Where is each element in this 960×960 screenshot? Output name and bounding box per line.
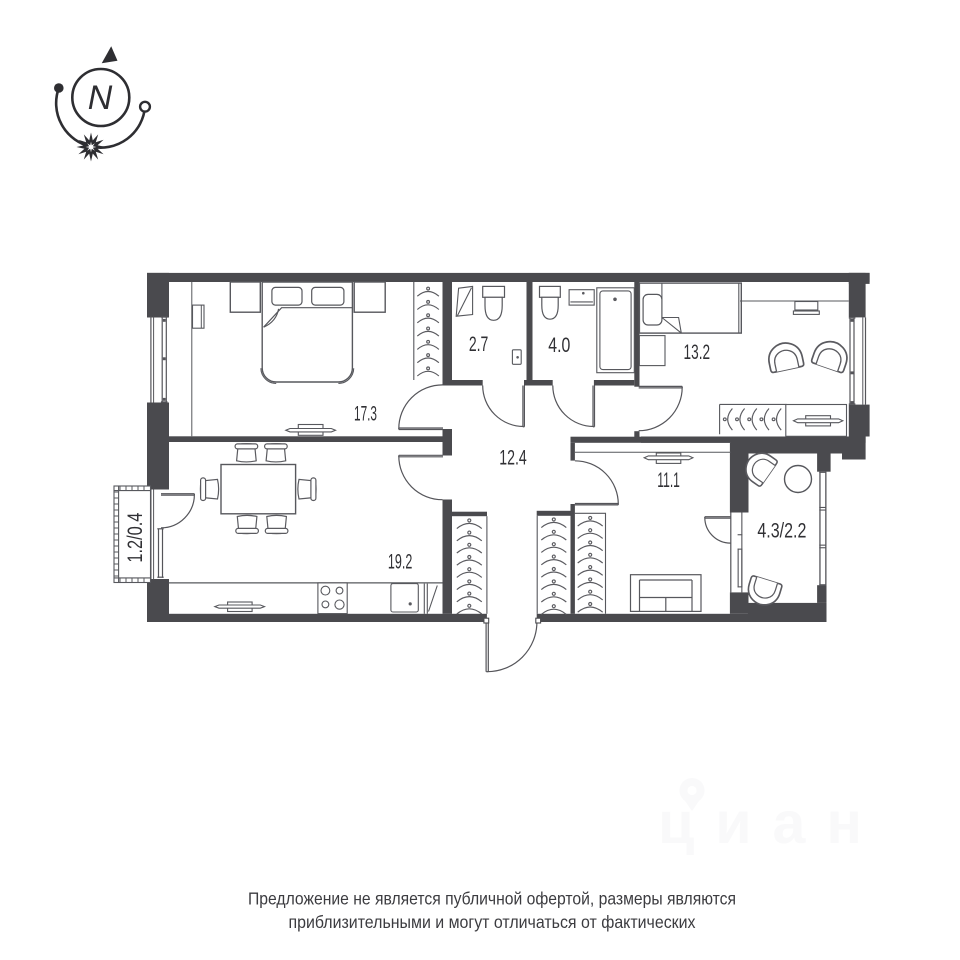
svg-text:11.1: 11.1 [657,468,680,492]
svg-text:19.2: 19.2 [388,549,412,573]
svg-text:12.4: 12.4 [499,446,527,470]
svg-text:4.3/2.2: 4.3/2.2 [757,519,806,543]
svg-text:2.7: 2.7 [469,332,489,356]
svg-text:13.2: 13.2 [684,340,711,364]
svg-text:Предложение не является публич: Предложение не является публичной оферто… [248,889,736,909]
svg-text:N: N [88,79,113,117]
svg-text:17.3: 17.3 [354,401,377,425]
svg-text:1.2/0.4: 1.2/0.4 [123,512,147,562]
svg-text:циан: циан [658,790,883,856]
svg-text:4.0: 4.0 [548,333,570,357]
svg-text:приблизительными и могут отлич: приблизительными и могут отличаться от ф… [289,912,696,932]
